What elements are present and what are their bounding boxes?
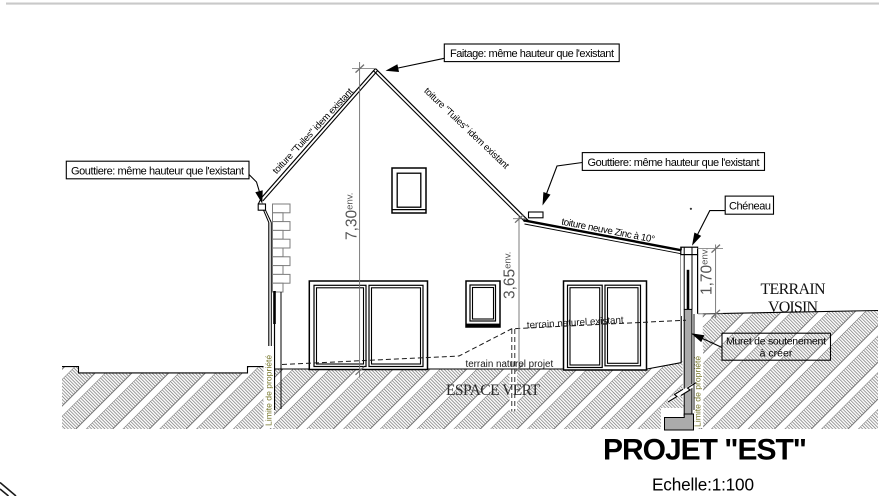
svg-text:Muret de soutenement: Muret de soutenement xyxy=(726,336,826,348)
svg-text:Limite de propriété: Limite de propriété xyxy=(693,356,703,427)
svg-text:VOISIN: VOISIN xyxy=(768,299,818,316)
svg-text:TERRAIN: TERRAIN xyxy=(761,281,826,298)
svg-text:Gouttiere: même hauteur que l': Gouttiere: même hauteur que l'existant xyxy=(71,165,244,177)
svg-text:PROJET "EST": PROJET "EST" xyxy=(603,434,807,467)
svg-text:Echelle:1:100: Echelle:1:100 xyxy=(652,475,754,495)
svg-text:Limite de propriété: Limite de propriété xyxy=(264,355,274,426)
svg-text:à créer: à créer xyxy=(760,348,793,360)
svg-text:ESPACE VERT: ESPACE VERT xyxy=(446,382,541,399)
svg-text:terrain naturel projet: terrain naturel projet xyxy=(466,359,554,370)
svg-text:Gouttiere: même hauteur que l': Gouttiere: même hauteur que l'existant xyxy=(588,157,760,169)
svg-text:Chéneau: Chéneau xyxy=(729,201,771,213)
svg-text:Faitage: même hauteur que l'ex: Faitage: même hauteur que l'existant xyxy=(450,48,614,60)
